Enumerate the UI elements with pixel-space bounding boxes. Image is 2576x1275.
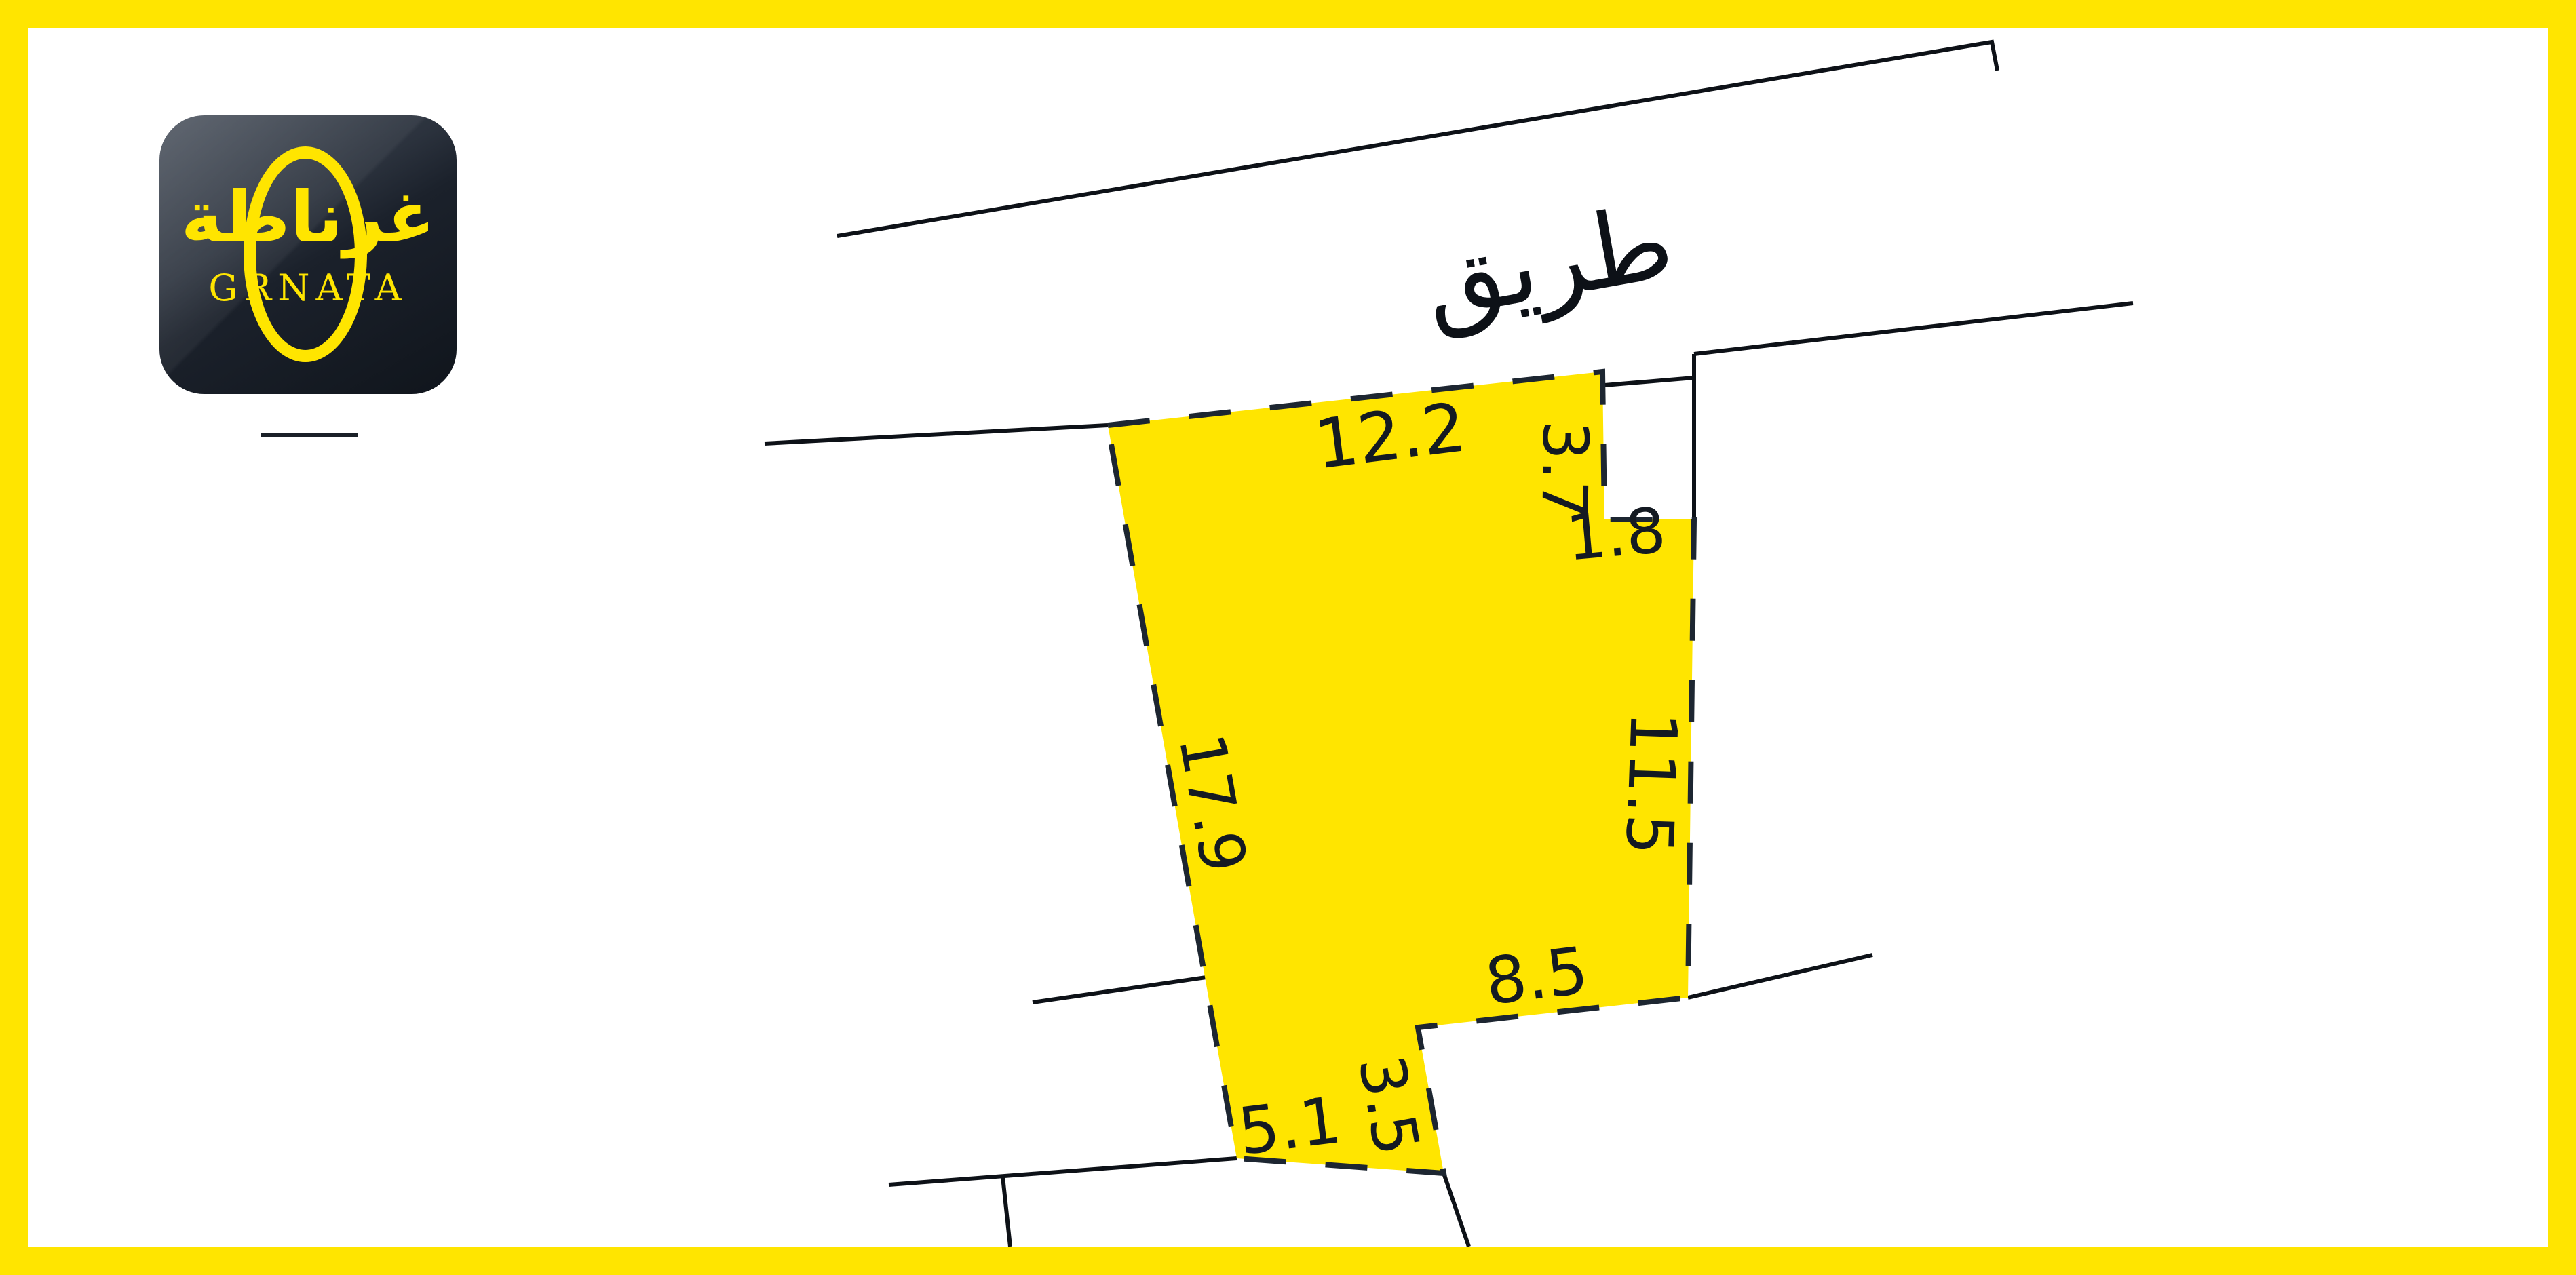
road-upper-edge (837, 42, 1997, 236)
neighbor-dropper-right (1444, 1173, 1469, 1247)
neighbor-line-left (1033, 977, 1206, 1002)
edge-measurement-label: 5.1 (1234, 1083, 1345, 1170)
road-lower-edge-mid (1604, 378, 1694, 385)
road-lower-edge-left (765, 425, 1108, 444)
plot-survey-sheet: 12.23.71.811.58.53.55.117.9طريق غرناطة G… (0, 0, 2576, 1275)
edge-measurement-label: 1.8 (1563, 494, 1668, 574)
logo-underscore-mark (261, 433, 358, 437)
road-label: طريق (1415, 182, 1682, 342)
neighbor-dropper-left (1003, 1177, 1010, 1247)
road-lower-edge-right (1694, 303, 2133, 354)
logo-arabic-wordmark: غرناطة (159, 182, 457, 252)
grnata-logo: غرناطة GRNATA (159, 115, 457, 394)
logo-latin-wordmark: GRNATA (159, 270, 457, 307)
edge-measurement-label: 11.5 (1611, 710, 1690, 856)
neighbor-line-bottom-right (1688, 955, 1872, 998)
edge-measurement-label: 8.5 (1481, 933, 1592, 1020)
neighbor-line-bottom-left (889, 1158, 1237, 1185)
